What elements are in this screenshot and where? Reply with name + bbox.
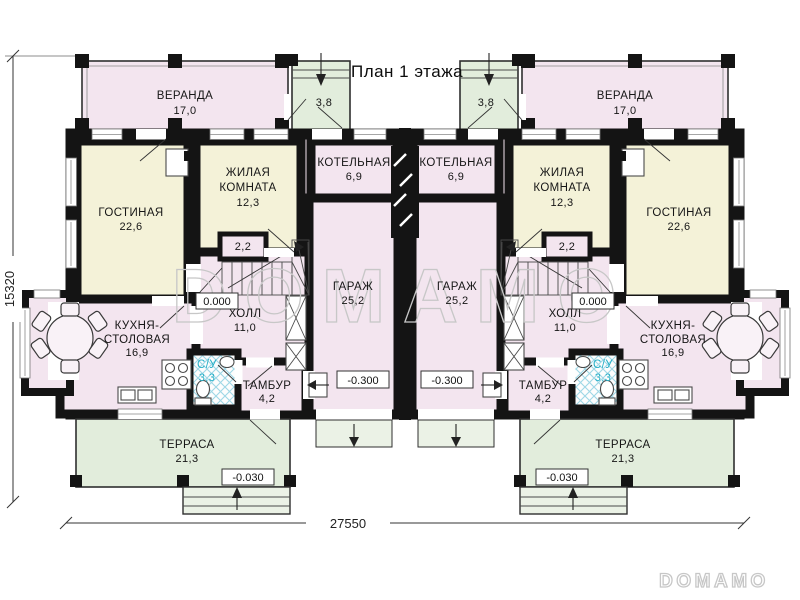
plan-title: План 1 этажа	[351, 62, 463, 81]
room-area-hall: 11,0	[234, 322, 256, 334]
room-label-tambour: ТАМБУР	[243, 380, 292, 392]
room-label-kitchen-1: КУХНЯ-	[115, 320, 160, 332]
room-label-boiler-r: КОТЕЛЬНАЯ	[419, 157, 492, 169]
room-area-kitchen-r: 16,9	[661, 347, 684, 359]
room-area-stair-closet-r: 2,2	[559, 241, 576, 253]
room-area-boiler: 6,9	[346, 171, 363, 183]
room-area-tambour: 4,2	[259, 393, 276, 405]
room-area-living-r: 22,6	[667, 221, 690, 233]
room-area-wc: 3,3	[199, 372, 216, 384]
room-label-bedroom-2-r: КОМНАТА	[533, 182, 590, 194]
room-label-wc: С/У	[197, 359, 217, 371]
room-area-kitchen: 16,9	[125, 347, 148, 359]
room-label-tambour-r: ТАМБУР	[519, 380, 568, 392]
room-label-kitchen-2-r: СТОЛОВАЯ	[640, 334, 706, 346]
room-area-tambour-r: 4,2	[535, 393, 552, 405]
room-area-bedroom: 12,3	[236, 197, 259, 209]
room-area-wc-r: 3,3	[595, 372, 612, 384]
room-label-wc-r: С/У	[593, 359, 613, 371]
room-label-hall: ХОЛЛ	[229, 308, 262, 320]
level-zero-label: 0.000	[203, 296, 231, 308]
floor-plan-page: 15320 27550 DOMAMO DOMAMO План 1 этажа В…	[0, 0, 800, 600]
room-label-terrace: ТЕРРАСА	[159, 439, 214, 451]
floor-plan-canvas: 15320 27550 DOMAMO DOMAMO План 1 этажа В…	[0, 0, 800, 600]
room-label-kitchen-2: СТОЛОВАЯ	[104, 334, 170, 346]
room-area-bedroom-r: 12,3	[550, 197, 573, 209]
room-area-terrace: 21,3	[175, 453, 198, 465]
dimension-height-label: 15320	[2, 271, 17, 307]
room-area-porch: 3,8	[316, 97, 333, 109]
room-label-garage-r: ГАРАЖ	[437, 281, 477, 293]
room-label-bedroom-1: ЖИЛАЯ	[226, 167, 270, 179]
room-label-boiler: КОТЕЛЬНАЯ	[317, 157, 390, 169]
room-area-living: 22,6	[119, 221, 142, 233]
room-area-terrace-r: 21,3	[611, 453, 634, 465]
room-label-bedroom-1-r: ЖИЛАЯ	[540, 167, 584, 179]
room-label-bedroom-2: КОМНАТА	[219, 182, 276, 194]
room-area-veranda-r: 17,0	[613, 105, 636, 117]
level-terrace-label-r: -0.030	[546, 472, 577, 484]
room-label-veranda: ВЕРАНДА	[157, 90, 213, 102]
level-garage-label-r: -0.300	[431, 375, 462, 387]
room-area-garage: 25,2	[341, 295, 364, 307]
level-zero-label-r: 0.000	[579, 296, 607, 308]
room-label-kitchen-1-r: КУХНЯ-	[651, 320, 696, 332]
level-garage-label: -0.300	[347, 375, 378, 387]
dimension-height: 15320	[2, 50, 75, 508]
room-area-hall-r: 11,0	[554, 322, 576, 334]
room-area-porch-r: 3,8	[478, 97, 495, 109]
watermark-corner: DOMAMO	[659, 571, 769, 592]
room-label-veranda-r: ВЕРАНДА	[597, 90, 653, 102]
room-area-stair-closet: 2,2	[235, 241, 252, 253]
room-label-hall-r: ХОЛЛ	[549, 308, 582, 320]
dimension-width-label: 27550	[330, 516, 366, 531]
dimension-width: 27550	[60, 514, 750, 532]
room-area-boiler-r: 6,9	[448, 171, 465, 183]
room-area-veranda: 17,0	[173, 105, 196, 117]
room-label-garage: ГАРАЖ	[333, 281, 373, 293]
room-label-terrace-r: ТЕРРАСА	[595, 439, 650, 451]
room-area-garage-r: 25,2	[445, 295, 468, 307]
room-label-living-r: ГОСТИНАЯ	[646, 207, 711, 219]
level-terrace-label: -0.030	[232, 472, 263, 484]
chimney-icon	[391, 146, 419, 238]
room-label-living: ГОСТИНАЯ	[98, 207, 163, 219]
